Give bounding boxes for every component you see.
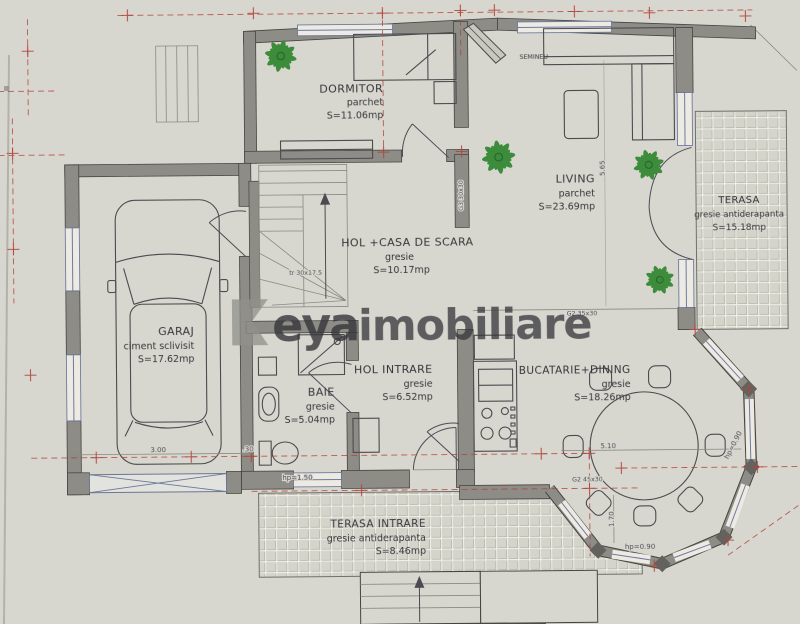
terasa-intrare-name: TERASA INTRARE xyxy=(329,518,426,531)
bucatarie-finish: gresie xyxy=(602,379,631,390)
watermark-logo-text: eya xyxy=(272,297,359,352)
dormitor-area: S=11.06mp xyxy=(327,110,384,121)
garage-south-wall-a xyxy=(67,473,89,495)
living-name: LIVING xyxy=(555,172,594,185)
garaj-name: GARAJ xyxy=(158,325,194,338)
watermark-brand-text: imobiliare xyxy=(358,299,592,351)
semineu-label: SEMINEU xyxy=(519,54,548,61)
bucatarie-name: BUCATARIE+DINING xyxy=(519,364,631,377)
hol-scara-area: S=10.17mp xyxy=(373,265,430,276)
watermark: eya imobiliare xyxy=(232,295,592,352)
floor-plan-page: DORMITOR parchet S=11.06mp SEMINEU LIVIN… xyxy=(0,0,800,624)
dim-dining-side: 1.70 xyxy=(608,511,616,527)
living-east-wall-b xyxy=(678,307,695,329)
dim-wall-thickness: .30 xyxy=(243,445,254,453)
hol-intrare-name: HOL INTRARE xyxy=(354,363,433,377)
garaj-finish: ciment sclivisit xyxy=(123,341,194,353)
hol-scara-finish: gresie xyxy=(385,252,414,263)
hol-intrare-area: S=6.52mp xyxy=(382,392,433,403)
baie-name: BAIE xyxy=(308,386,335,399)
dim-baie-window: hp=1.50 xyxy=(282,474,312,482)
garage-north-wall xyxy=(65,163,245,177)
kitchen-west-wall xyxy=(457,329,474,471)
living-east-wall-a xyxy=(676,27,694,92)
living-area: S=23.69mp xyxy=(539,201,596,212)
scan-mark xyxy=(4,86,9,91)
g3-label: G3 30x30 xyxy=(458,180,465,211)
stair-newel-wall xyxy=(249,181,260,307)
stair-tread-note: tr 30x17.5 xyxy=(289,270,322,277)
bedroom-west-wall xyxy=(244,31,257,163)
kitchen-south-wall xyxy=(460,485,550,500)
south-wall-b xyxy=(341,470,409,489)
baie-area: S=5.04mp xyxy=(284,415,335,426)
dim-garage-width: 3.00 xyxy=(150,446,166,454)
g2-label-b: G2 45x30 xyxy=(572,476,603,483)
garage-south-wall-b xyxy=(226,471,241,493)
dim-dining-width: 5.10 xyxy=(600,442,616,450)
dormitor-name: DORMITOR xyxy=(319,82,383,96)
garage-west-wall-a xyxy=(65,165,80,228)
garage-west-wall-b xyxy=(66,291,81,355)
south-wall-c xyxy=(456,469,474,487)
dim-living-depth: 5.65 xyxy=(599,160,607,176)
entry-steps xyxy=(360,570,597,624)
dim-bay-parapet: hp=0.90 xyxy=(625,543,655,551)
terasa-intrare-area: S=8.46mp xyxy=(376,546,427,557)
terasa-name: TERASA xyxy=(717,195,760,206)
entry-platform xyxy=(480,570,597,623)
terasa-area: S=15.18mp xyxy=(712,223,766,233)
bucatarie-area: S=18.26mp xyxy=(574,392,631,403)
dormitor-finish: parchet xyxy=(347,97,384,108)
garaj-area: S=17.62mp xyxy=(138,354,195,365)
hol-intrare-finish: gresie xyxy=(404,379,433,390)
hol-scara-name: HOL +CASA DE SCARA xyxy=(341,235,473,249)
terasa-finish: gresie antiderapanta xyxy=(694,210,784,221)
living-finish: parchet xyxy=(559,188,596,199)
floor-plan: DORMITOR parchet S=11.06mp SEMINEU LIVIN… xyxy=(0,0,800,624)
terasa-intrare-finish: gresie antiderapanta xyxy=(327,533,426,545)
garage-door xyxy=(89,474,226,493)
baie-finish: gresie xyxy=(306,402,335,413)
